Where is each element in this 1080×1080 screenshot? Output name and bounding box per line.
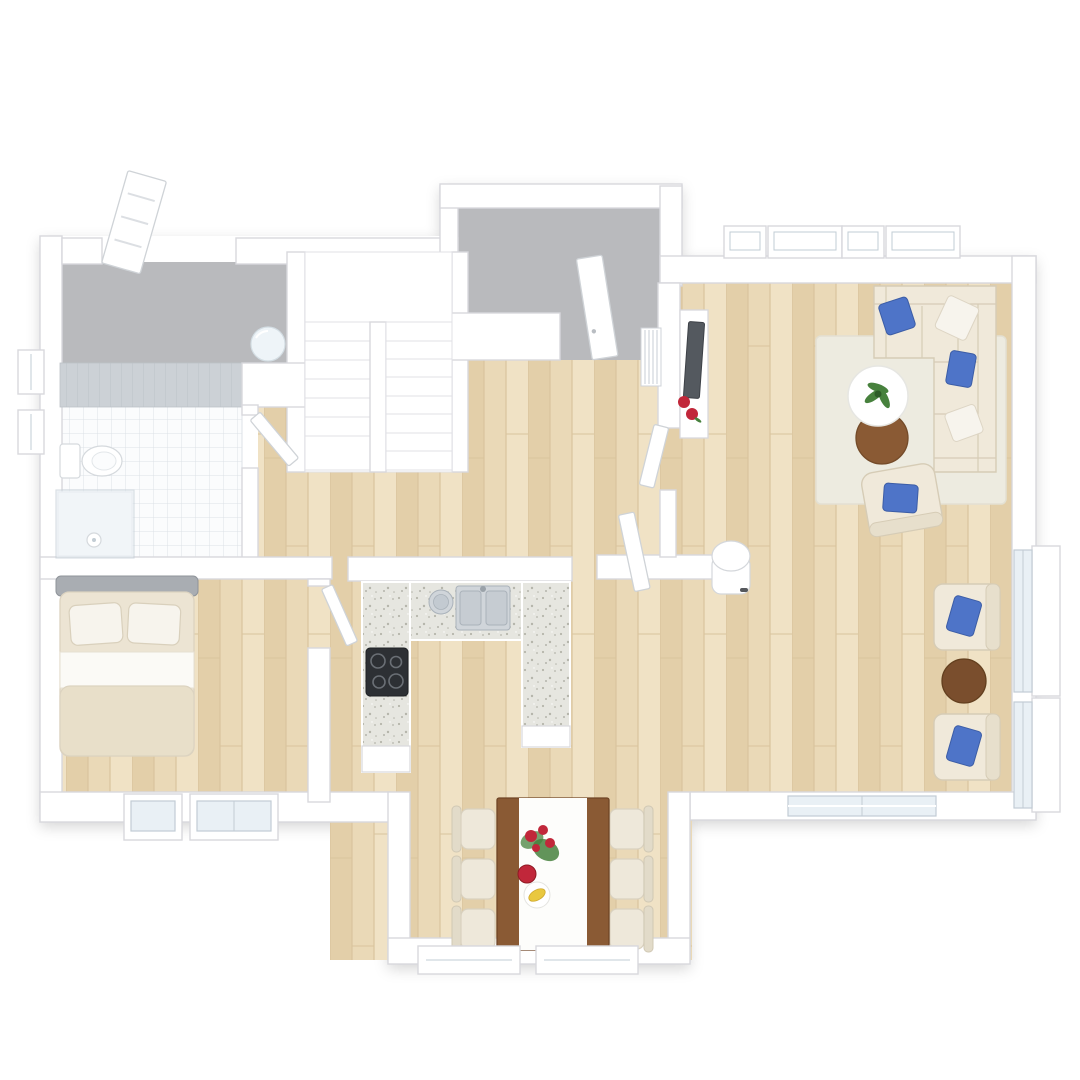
bedroom-furniture [56,576,198,756]
window [768,226,842,258]
sink-basin-right [486,591,507,625]
armchair-back [986,714,1000,780]
stair-left-flight [305,322,370,470]
french-window [1032,546,1060,696]
sofa-pillow-blue [945,350,977,388]
wall-utility-stair-divider [287,252,305,472]
wall-bath-right-stub [242,405,258,415]
sink-basin-left [460,591,481,625]
flower-bloom [525,830,537,842]
dining-chair-back [452,856,461,902]
right-wall-windows [1014,546,1060,812]
toilet-seat [92,452,116,470]
decor-apple [678,396,690,408]
toilet-tank [60,444,80,478]
round-side-table [942,659,986,703]
counter-right-arm [522,582,570,747]
stair-tread [386,433,452,451]
stair-tread [305,398,370,417]
wall-bay-left [388,792,410,960]
dining-chair [610,909,644,949]
wall-top-left-a [62,238,102,264]
wall-bedroom-right-stub [308,579,330,586]
bedroom-bottom-windows [124,794,278,840]
stair-tread [305,417,370,436]
stair-tread [305,360,370,379]
bathroom-tiled-wall [60,363,242,407]
stair-tread [386,451,452,470]
window-glass [131,801,175,831]
stair-right-flight [386,322,452,470]
bed-pillow-left [69,602,124,646]
plant-center [875,391,882,398]
wall-entry-bottom [440,313,560,360]
dining-chair [461,909,495,949]
flower-bloom [538,825,548,835]
floorplan-rendering [0,0,1080,1080]
armchair-back [986,584,1000,650]
stair-tread [305,322,370,341]
bed-pillow-right [127,603,181,646]
wall-bedroom-right [308,648,330,802]
radiator [641,328,661,386]
dining-chair-back [644,806,653,852]
wall-kitchen-top [348,557,572,581]
utility-room-fixtures [251,327,285,361]
living-top-windows [724,226,960,258]
shower-drain-center [92,538,96,542]
sink-faucet [480,586,486,592]
dining-chair-back [644,906,653,952]
round-basin [251,327,285,361]
stair-tread [305,379,370,398]
right-armchair-2 [934,714,1000,780]
cabinet-base-right [522,726,570,747]
wall-hall-living-lower [660,490,676,557]
stair-tread [386,341,452,359]
armchair-pillow-blue [883,483,919,513]
wall-living-top [660,256,1036,283]
dining-set [452,798,653,952]
staircase [305,252,452,472]
dining-chair [461,809,495,849]
bed-blanket [60,686,194,756]
stool-slot [740,588,748,592]
window [886,226,960,258]
bathroom-fixtures [56,444,134,558]
dining-chair [610,859,644,899]
dining-chair-row-right [610,806,653,952]
bed-sheet-fold [60,652,194,688]
wall-entry-top [440,184,682,208]
flower-bloom [532,844,540,852]
stair-tread [386,414,452,433]
stair-tread [386,377,452,396]
dining-chair-back [452,806,461,852]
wall-kitchen-closet [597,555,713,579]
red-bowl [518,865,536,883]
stair-tread [305,341,370,360]
stair-bottom-step [305,436,370,470]
sliding-door [788,796,936,816]
wall-bath-right-lower [242,468,258,562]
dining-chair [610,809,644,849]
shower-glass-enclosure [56,490,134,558]
right-armchair-1 [934,584,1000,650]
accent-armchair [860,462,944,538]
wall-stair-right [452,252,468,472]
wall-bay-right [668,792,690,960]
floorplan-canvas [0,0,1080,1080]
dining-chair-row-left [452,806,495,952]
stair-center-divider [370,322,386,472]
flower-bloom [545,838,555,848]
wall-bath-top-right [242,363,305,407]
dining-chair [461,859,495,899]
stair-tread [386,322,452,341]
round-stool [712,541,750,594]
cabinet-base-left [362,746,410,772]
stair-tread [386,359,452,377]
dining-chair-back [644,856,653,902]
french-window [1032,698,1060,812]
cooktop [366,648,408,696]
stool-top [712,541,750,571]
stair-tread [386,396,452,414]
steel-canister-lid [434,595,449,610]
dining-chair-back [452,906,461,952]
